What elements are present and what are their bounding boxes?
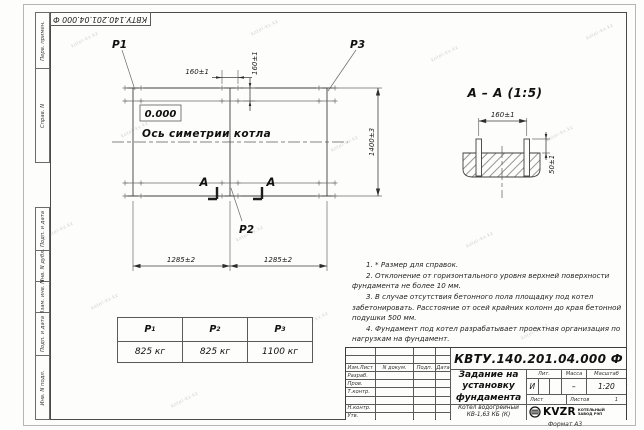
load-table: P1 P2 P3 825 кг 825 кг 1100 кг bbox=[117, 317, 313, 363]
plan-dimensions: 1285±2 1285±2 1400±3 160±1 160±1 bbox=[133, 51, 382, 271]
technical-notes: 1. * Размер для справок. 2. Отклонение о… bbox=[352, 260, 631, 345]
anchor-bolt-right bbox=[524, 139, 530, 176]
role-tkontr: Т.контр. bbox=[346, 388, 375, 395]
dim-bolt-y: 160±1 bbox=[251, 51, 259, 75]
drawing-sheet: kotel-kv.kz kotel-kv.kz kotel-kv.kz kote… bbox=[0, 0, 644, 430]
dim-right-span: 1285±2 bbox=[264, 256, 293, 264]
role-prov: Пров. bbox=[346, 380, 375, 387]
product-name: Котел водогрейный КВ-1,63 КБ (К) bbox=[451, 405, 526, 420]
section-title: А – А (1:5) bbox=[466, 86, 542, 100]
load-point-p3-label: P3 bbox=[350, 39, 365, 51]
section-cut-marks bbox=[208, 187, 262, 199]
load-value-p1: 825 кг bbox=[118, 342, 182, 362]
col-izm-list: Изм.Лист bbox=[346, 364, 375, 371]
section-letter-right: А bbox=[266, 175, 276, 189]
lit-label: Лит. bbox=[527, 370, 561, 378]
section-a-a-view: А – А (1:5) 160±1 50±1 bbox=[463, 86, 556, 198]
anchor-bolt-left bbox=[476, 139, 482, 176]
dim-depth: 1400±3 bbox=[368, 128, 376, 156]
note-2: 2. Отклонение от горизонтального уровня … bbox=[352, 271, 631, 292]
elevation-mark: 0.000 bbox=[145, 109, 177, 120]
mass-value: – bbox=[562, 379, 586, 394]
p-symbol: P bbox=[144, 324, 151, 335]
drawing-title: Задание на установку фундамента bbox=[451, 370, 526, 404]
title-line: фундамента bbox=[456, 393, 521, 404]
p-symbol: P bbox=[274, 324, 281, 335]
revision-header-row: Изм.Лист N докум. Подп. Дата bbox=[346, 364, 450, 371]
note-4: 4. Фундамент под котел разрабатывает про… bbox=[352, 324, 631, 345]
note-1: 1. * Размер для справок. bbox=[352, 260, 631, 271]
load-value-p3: 1100 кг bbox=[248, 342, 312, 362]
logo-text: KVZR bbox=[543, 406, 576, 418]
mass-label: Масса bbox=[562, 370, 586, 378]
product-line: КВ-1,63 КБ (К) bbox=[467, 412, 511, 419]
lit-value: И bbox=[527, 379, 538, 394]
load-table-header-p1: P1 bbox=[118, 318, 182, 341]
sheets-value: 1 bbox=[615, 397, 618, 403]
dim-bolt-x: 160±1 bbox=[185, 68, 209, 76]
col-n-dokum: N докум. bbox=[376, 364, 413, 371]
scale-value: 1:20 bbox=[587, 379, 626, 394]
logo-caption-line: ЗАВОД РЭП bbox=[578, 412, 605, 417]
col-podp: Подп. bbox=[414, 364, 435, 371]
foundation-plan bbox=[112, 86, 348, 200]
dim-bolt-protrusion: 50±1 bbox=[548, 155, 556, 174]
sheets-label: Листов bbox=[570, 397, 589, 403]
sheets-cell: Листов 1 bbox=[567, 395, 626, 404]
dim-left-span: 1285±2 bbox=[167, 256, 196, 264]
p-subscript: 3 bbox=[281, 326, 285, 333]
kvzr-emblem-icon bbox=[529, 406, 541, 418]
product-line: Котел водогрейный bbox=[458, 405, 519, 412]
manufacturer-logo: KVZR КОТЕЛЬНЫЙ ЗАВОД РЭП bbox=[527, 405, 626, 420]
logo-caption: КОТЕЛЬНЫЙ ЗАВОД РЭП bbox=[578, 408, 605, 418]
title-line: установку bbox=[462, 381, 515, 392]
scale-label: Масштаб bbox=[587, 370, 626, 378]
format-note: Формат А3 bbox=[548, 421, 582, 428]
title-line: Задание на bbox=[459, 370, 519, 381]
role-utv: Утв. bbox=[346, 413, 375, 420]
col-data: Дата bbox=[436, 364, 450, 371]
doc-number: КВТУ.140.201.04.000 Ф bbox=[451, 348, 626, 369]
p-subscript: 1 bbox=[151, 326, 155, 333]
symmetry-axis-label: Ось симетрии котла bbox=[142, 128, 271, 140]
load-value-p2: 825 кг bbox=[183, 342, 247, 362]
title-block-signature-grid: Изм.Лист N докум. Подп. Дата Разраб. Про… bbox=[346, 348, 450, 420]
role-razrab: Разраб. bbox=[346, 372, 375, 379]
load-table-header-p3: P3 bbox=[248, 318, 312, 341]
sheet-label: Лист bbox=[527, 395, 566, 404]
p-subscript: 2 bbox=[216, 326, 220, 333]
dim-section-spacing: 160±1 bbox=[491, 111, 515, 119]
load-point-p1-label: P1 bbox=[112, 39, 127, 51]
note-3: 3. В случае отсутствия бетонного пола пл… bbox=[352, 292, 631, 324]
role-nkontr: Н.контр. bbox=[346, 405, 375, 412]
load-point-p2-label: P2 bbox=[239, 224, 254, 236]
lit-mass-scale-grid: Лит. Масса Масштаб И – 1:20 Лист bbox=[527, 370, 626, 420]
load-table-header-p2: P2 bbox=[183, 318, 247, 341]
p-symbol: P bbox=[209, 324, 216, 335]
title-block: Изм.Лист N докум. Подп. Дата Разраб. Про… bbox=[345, 347, 627, 420]
section-letter-left: А bbox=[199, 175, 209, 189]
